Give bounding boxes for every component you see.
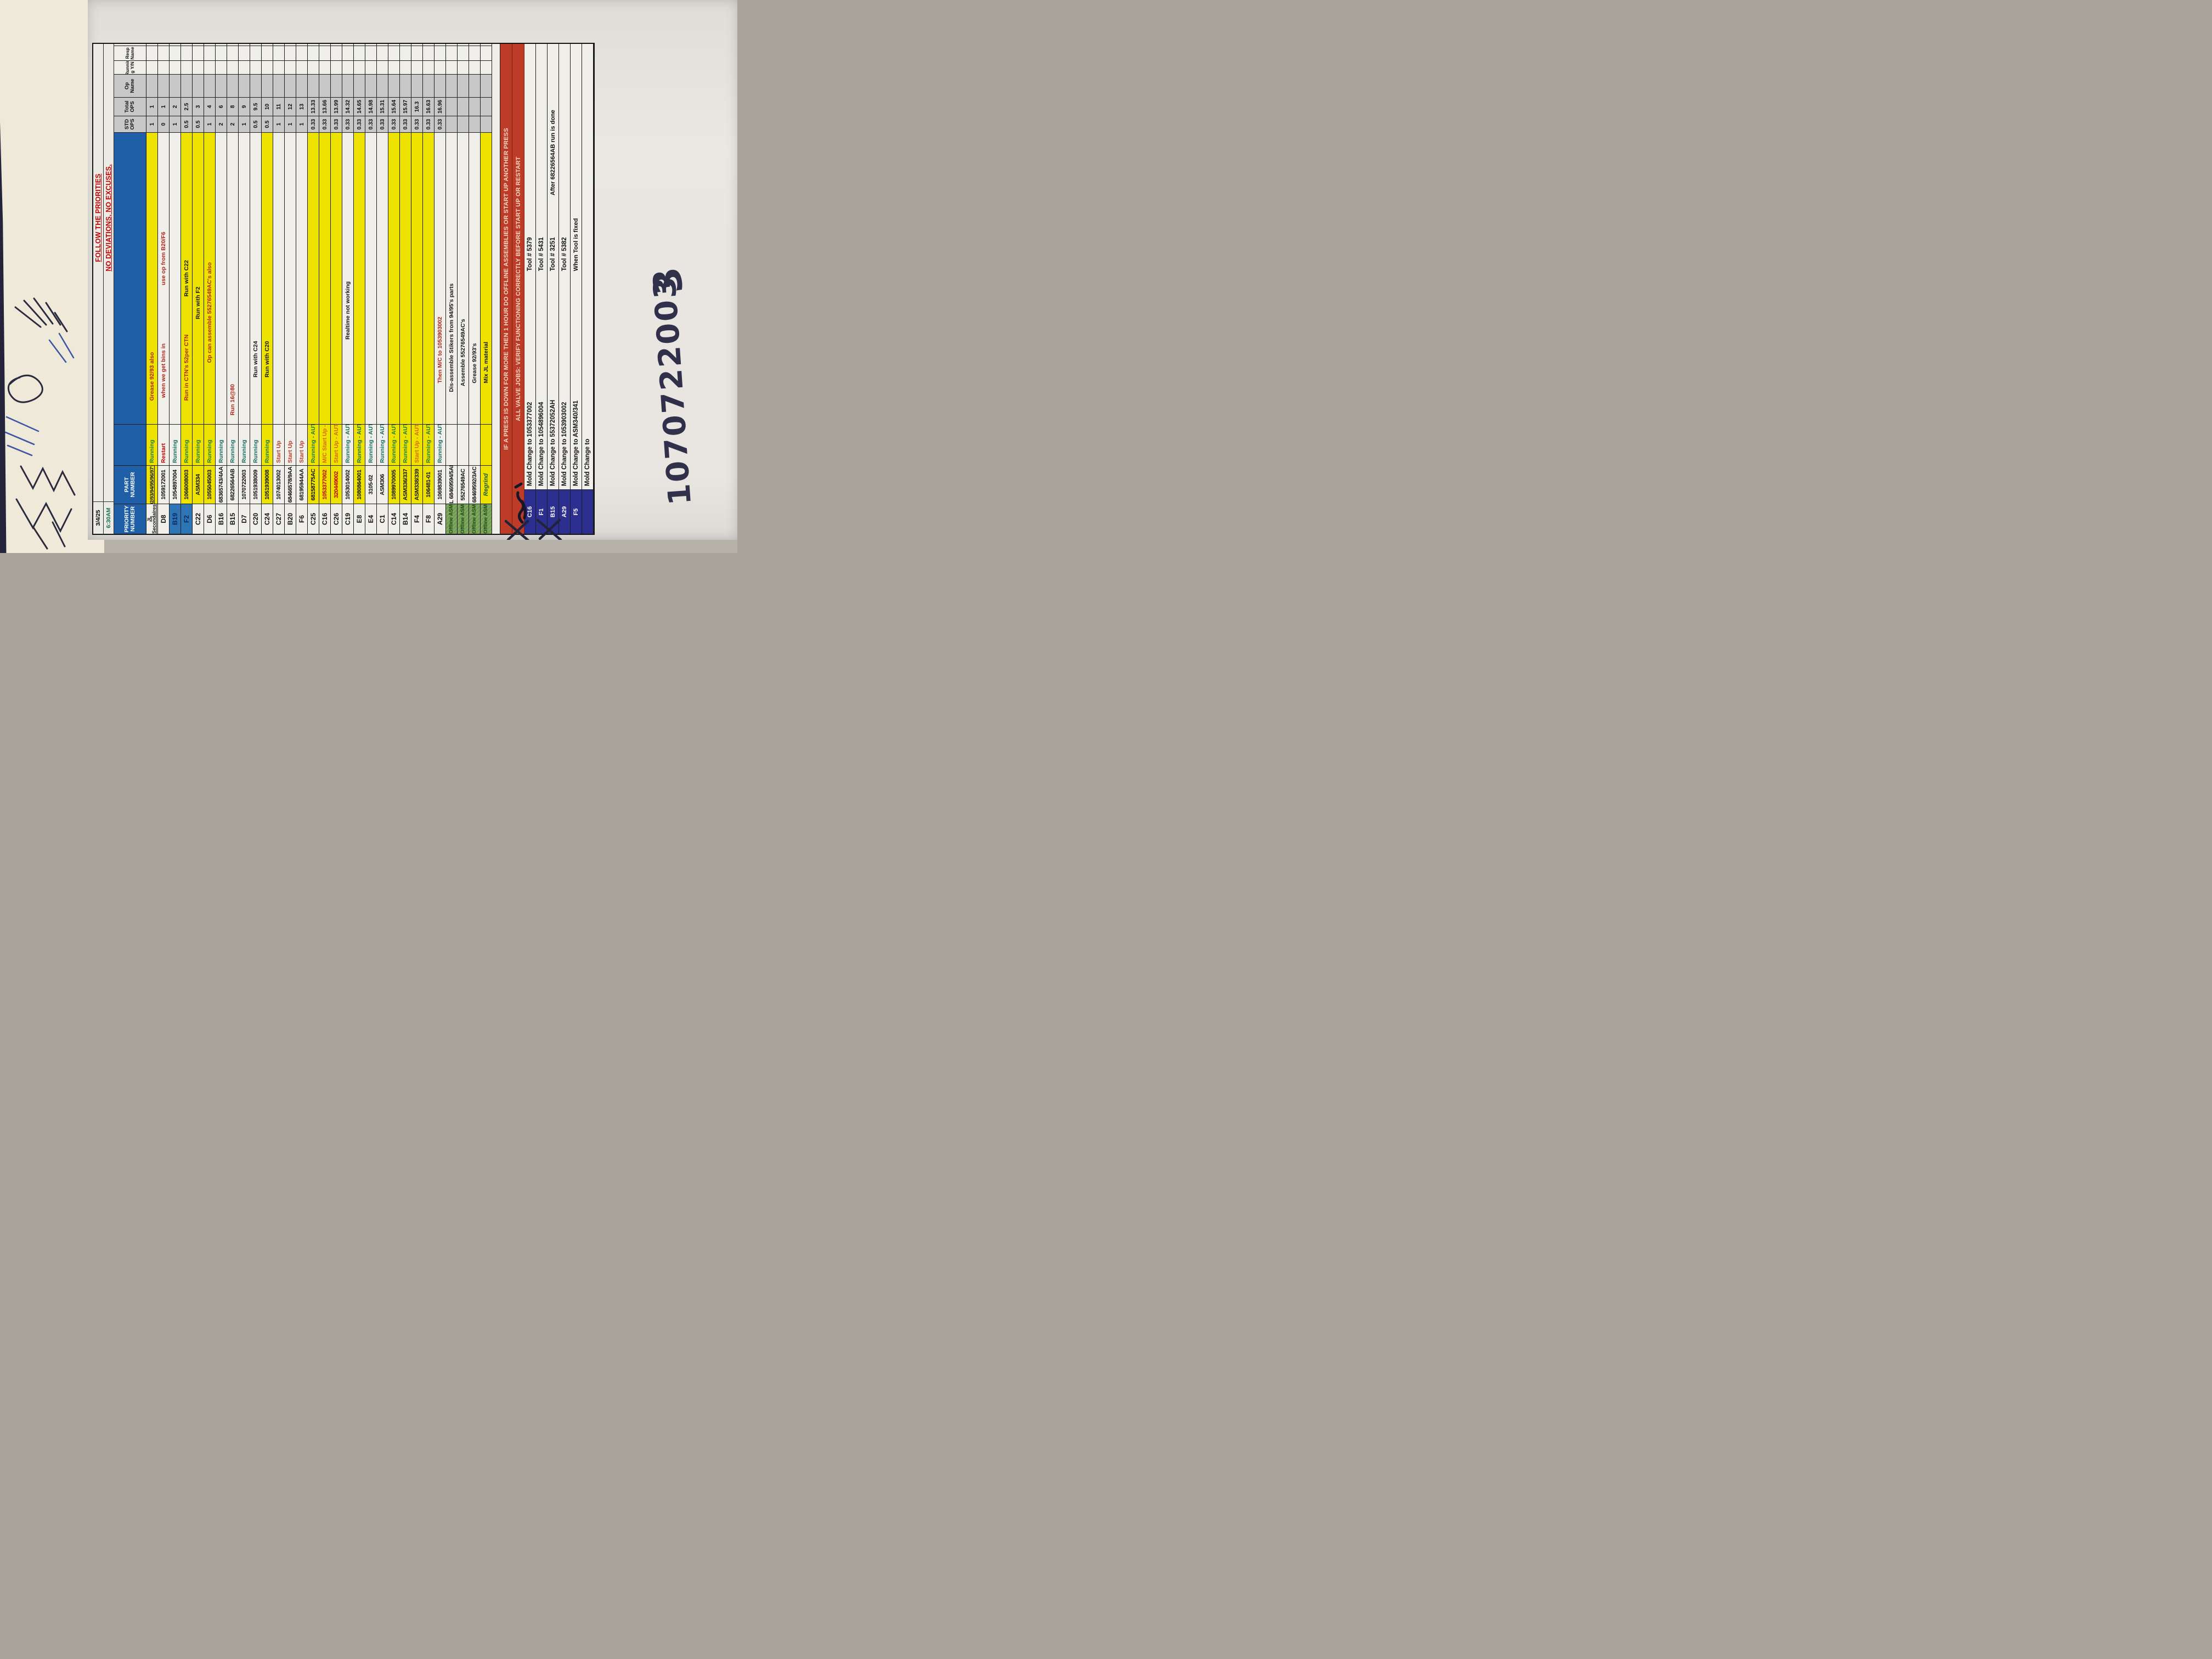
cell-notes: Realtime not working: [342, 132, 353, 424]
cell-op-name: [469, 74, 480, 97]
note-text: Then M/C to 1053903002: [437, 317, 443, 383]
cell-total-ops: 14.98: [365, 97, 376, 116]
mold-change-row: B15Mold Change to 55372052AHTool # 3251A…: [548, 44, 559, 534]
banner-text: IF A PRESS IS DOWN FOR MORE THEN 1 HOUR …: [503, 128, 510, 450]
cell-part-number: 3105-02: [365, 465, 376, 504]
cell-resp-name: [458, 46, 469, 60]
mold-row-press-label: [582, 489, 593, 534]
cell-status: Running: [227, 424, 238, 465]
cell-op-name: [354, 74, 365, 97]
cell-std-ops: 0.33: [331, 116, 342, 132]
cell-status: Running - AUTO: [435, 424, 445, 465]
data-rows: JLSecondaires92/93/94/95/96/97'sRunningG…: [146, 44, 492, 534]
cell-notes: [354, 132, 365, 424]
cell-notes: [411, 132, 422, 424]
cell-std-ops: 0.33: [319, 116, 330, 132]
cell-total-ops: 14.65: [354, 97, 365, 116]
cell-notes: Dis-assemble Stikers from 94/95's parts: [446, 132, 457, 424]
cell-resp-name: [331, 46, 342, 60]
cell-priority: D8: [158, 504, 169, 534]
cell-total-ops: 1: [158, 97, 169, 116]
cell-total-ops: 15.31: [377, 97, 388, 116]
cell-running-yn: [354, 60, 365, 74]
mold-change-row: A29Mold Change to 1053903002Tool # 5382: [559, 44, 571, 534]
cell-total-ops: 16.3: [411, 97, 422, 116]
cell-std-ops: [446, 116, 457, 132]
cell-priority: B16: [216, 504, 227, 534]
cell-running-yn: [181, 60, 192, 74]
table-row: C22ASM334RunningRun with F20.53: [193, 44, 204, 534]
mold-row-body: Mold Change to 1053903002Tool # 5382: [559, 44, 570, 489]
cell-priority: D6: [204, 504, 215, 534]
cell-running-yn: [365, 60, 376, 74]
cell-priority: E8: [354, 504, 365, 534]
table-row: D71070722003Running19: [239, 44, 250, 534]
cell-status: Running - AUTO: [400, 424, 411, 465]
cell-status: Start Up: [296, 424, 307, 465]
cell-status: [458, 424, 469, 465]
cell-op-name: [227, 74, 238, 97]
cell-resp-name: [239, 46, 250, 60]
date-cell: 3/4/25: [93, 501, 103, 534]
cell-status: Running - AUTO: [377, 424, 388, 465]
cell-std-ops: [469, 116, 480, 132]
cell-priority: F4: [411, 504, 422, 534]
cell-part-number: 1051939008: [262, 465, 273, 504]
cell-part-number: 1074013002: [273, 465, 284, 504]
cell-status: Running: [216, 424, 227, 465]
note-text: Run with F2: [195, 286, 201, 319]
cell-op-name: [181, 74, 192, 97]
cell-total-ops: 16.96: [435, 97, 445, 116]
cell-op-name: [170, 74, 180, 97]
priority-schedule-table: 3/4/25 FOLLOW THE PRIORITIES 6:30AM NO D…: [92, 43, 595, 535]
cell-part-number: 68226564AB: [227, 465, 238, 504]
cell-total-ops: 4: [204, 97, 215, 116]
cell-total-ops: 13.66: [319, 97, 330, 116]
table-row: C1ASM306Running - AUTO0.3315.31: [377, 44, 388, 534]
cell-running-yn: [331, 60, 342, 74]
cell-std-ops: 1: [285, 116, 296, 132]
cell-op-name: [388, 74, 399, 97]
mold-row-press-label: B15: [548, 489, 558, 534]
table-row: C271074013002Start Up111: [273, 44, 285, 534]
cell-notes: Run 16@80: [227, 132, 238, 424]
cell-priority: C27: [273, 504, 284, 534]
table-row: Offline ASMRegrindMix JL material: [481, 44, 492, 534]
cell-priority: C20: [250, 504, 261, 534]
col-header-total-ops: Total OPS: [114, 97, 146, 116]
table-row: D81059172001Restartwhen we get bins inus…: [158, 44, 170, 534]
table-row: Offline ASMJL 68469594/5ABDis-assemble S…: [446, 44, 458, 534]
note-text: Run with C20: [264, 341, 270, 378]
cell-op-name: [446, 74, 457, 97]
cell-priority: C22: [193, 504, 204, 534]
table-row: C141089970005Running - AUTO0.3315.64: [388, 44, 400, 534]
cell-resp-name: [400, 46, 411, 60]
cell-priority: C24: [262, 504, 273, 534]
cell-running-yn: [388, 60, 399, 74]
cell-std-ops: 0.5: [181, 116, 192, 132]
warning-banner: ALL VALVE JOBS: VERIFY FUNCTIONING CORRE…: [512, 44, 524, 534]
table-row: C191053014002Running - AUTORealtime not …: [342, 44, 354, 534]
table-row: F4ASM338/339Start Up - AUTO0.3316.3: [411, 44, 423, 534]
cell-resp-name: [204, 46, 215, 60]
mold-change-row: Mold Change to: [582, 44, 594, 534]
note-text: Assemble 55276549AC's: [460, 319, 466, 386]
cell-priority: C19: [342, 504, 353, 534]
tool-number: Tool # 5431: [538, 237, 545, 271]
cell-running-yn: [400, 60, 411, 74]
cell-part-number: 1080864001: [354, 465, 365, 504]
cell-running-yn: [170, 60, 180, 74]
cell-part-number: 55276549AC: [458, 465, 469, 504]
cell-op-name: [423, 74, 434, 97]
cell-std-ops: 2: [216, 116, 227, 132]
cell-priority: A29: [435, 504, 445, 534]
cell-resp-name: [216, 46, 227, 60]
title-no-deviations: NO DEVIATIONS, NO EXCUSES.: [105, 164, 112, 271]
cell-op-name: [319, 74, 330, 97]
cell-priority: Offline ASM: [481, 504, 492, 534]
cell-running-yn: [469, 60, 480, 74]
cell-notes: [170, 132, 180, 424]
cell-std-ops: 0: [158, 116, 169, 132]
cell-total-ops: 15.64: [388, 97, 399, 116]
cell-total-ops: 9.5: [250, 97, 261, 116]
cell-status: Running - AUTO: [388, 424, 399, 465]
mold-change-row: F1Mold Change to 1054896004Tool # 5431: [536, 44, 548, 534]
cell-std-ops: 0.33: [411, 116, 422, 132]
cell-op-name: [342, 74, 353, 97]
mold-change-rows: C16Mold Change to 1053377002Tool # 5379F…: [524, 44, 594, 534]
cell-running-yn: [308, 60, 319, 74]
cell-part-number: 1069839001: [435, 465, 445, 504]
cell-part-number: Regrind: [481, 465, 492, 504]
title-follow-the-priorities: FOLLOW THE PRIORITIES: [94, 173, 102, 262]
cell-std-ops: 0.33: [354, 116, 365, 132]
table-row: F8106481-01Running - AUTO0.3316.63: [423, 44, 435, 534]
cell-std-ops: 0.5: [250, 116, 261, 132]
cell-running-yn: [262, 60, 273, 74]
cell-op-name: [250, 74, 261, 97]
table-row: C201051938009RunningRun with C240.59.5: [250, 44, 262, 534]
cell-notes: Then M/C to 1053903002: [435, 132, 445, 424]
cell-total-ops: [469, 97, 480, 116]
tool-number: Tool # 5379: [527, 237, 533, 271]
cell-part-number: 92/93/94/95/96/97's: [146, 465, 157, 504]
cell-resp-name: [308, 46, 319, 60]
note-text: Run with C24: [252, 341, 259, 378]
cell-total-ops: 15.97: [400, 97, 411, 116]
cell-total-ops: 1: [146, 97, 157, 116]
note-text: Run 16@80: [229, 384, 236, 415]
mold-row-body: Mold Change to: [582, 44, 593, 489]
table-row: C26320449002Start Up - AUTO0.3313.99: [331, 44, 342, 534]
handwritten-digit: 3: [644, 264, 692, 298]
cell-part-number: 106481-01: [423, 465, 434, 504]
cell-running-yn: [250, 60, 261, 74]
table-row: B14ASM336/337Running - AUTO0.3315.97: [400, 44, 411, 534]
cell-part-number: 1054897004: [170, 465, 180, 504]
cell-status: Running: [181, 424, 192, 465]
tool-number: Tool # 5382: [561, 237, 568, 271]
table-row: E43105-02Running - AUTO0.3314.98: [365, 44, 377, 534]
cell-notes: Run with C24: [250, 132, 261, 424]
cell-priority: Offline ASM: [458, 504, 469, 534]
cell-std-ops: 1: [170, 116, 180, 132]
cell-total-ops: [458, 97, 469, 116]
cell-std-ops: 0.33: [388, 116, 399, 132]
cell-total-ops: 13.33: [308, 97, 319, 116]
mold-change-text: Mold Change to ASM340/341: [573, 400, 579, 486]
cell-notes: [400, 132, 411, 424]
cell-part-number: 320449002: [331, 465, 342, 504]
cell-std-ops: 1: [296, 116, 307, 132]
cell-notes: Op can assemble 55276549AC's also: [204, 132, 215, 424]
cell-status: Running: [250, 424, 261, 465]
photo-canvas: 3/4/25 FOLLOW THE PRIORITIES 6:30AM NO D…: [0, 0, 737, 553]
cell-notes: [239, 132, 250, 424]
cell-op-name: [204, 74, 215, 97]
cell-resp-name: [469, 46, 480, 60]
cell-total-ops: 6: [216, 97, 227, 116]
cell-running-yn: [481, 60, 492, 74]
table-row: JLSecondaires92/93/94/95/96/97'sRunningG…: [146, 44, 158, 534]
cell-part-number: 68469592/3AC: [469, 465, 480, 504]
cell-resp-name: [481, 46, 492, 60]
cell-notes: Grease 92/93 also: [146, 132, 157, 424]
cell-total-ops: 16.63: [423, 97, 434, 116]
cell-std-ops: [458, 116, 469, 132]
col-header-op-name: Op Name: [114, 74, 146, 97]
cell-notes: [216, 132, 227, 424]
note-text: Realtime not working: [345, 281, 351, 340]
cell-total-ops: 10: [262, 97, 273, 116]
cell-op-name: [193, 74, 204, 97]
title-row-1: 3/4/25 FOLLOW THE PRIORITIES: [93, 44, 104, 534]
cell-part-number: 68365743/4AA: [216, 465, 227, 504]
table-row: B191054897004Running12: [170, 44, 181, 534]
cell-priority: B15: [227, 504, 238, 534]
table-row: Offline ASM55276549ACAssemble 55276549AC…: [458, 44, 469, 534]
cell-resp-name: [388, 46, 399, 60]
col-header-resp-name: Resp Name: [114, 46, 146, 60]
cell-resp-name: [158, 46, 169, 60]
table-row: Offline ASM68469592/3ACGrease 92/93's: [469, 44, 481, 534]
cell-resp-name: [377, 46, 388, 60]
mold-change-text: Mold Change to 1053377002: [527, 402, 533, 486]
mold-row-press-label: F5: [571, 489, 582, 534]
cell-priority: C25: [308, 504, 319, 534]
mold-change-text: Mold Change to: [584, 439, 591, 486]
cell-op-name: [146, 74, 157, 97]
cell-total-ops: [481, 97, 492, 116]
table-row: D61055045003RunningOp can assemble 55276…: [204, 44, 216, 534]
cell-resp-name: [319, 46, 330, 60]
cell-part-number: 68466578/9AA: [285, 465, 296, 504]
col-header-running-yn: Runnin g Y/N: [114, 60, 146, 74]
cell-std-ops: 0.5: [262, 116, 273, 132]
mold-change-text: Mold Change to 1054896004: [538, 402, 545, 486]
table-row: C241051939008RunningRun with C200.510: [262, 44, 273, 534]
cell-notes: [377, 132, 388, 424]
cell-status: M/C Start Up - AUTO: [319, 424, 330, 465]
cell-resp-name: [354, 46, 365, 60]
cell-std-ops: 0.33: [377, 116, 388, 132]
cell-total-ops: 13.99: [331, 97, 342, 116]
cell-resp-name: [146, 46, 157, 60]
cell-priority: Offline ASM: [469, 504, 480, 534]
cell-part-number: 1059172001: [158, 465, 169, 504]
cell-part-number: JL 68469594/5AB: [446, 465, 457, 504]
cell-part-number: 68195944AA: [296, 465, 307, 504]
cell-notes: Run with F2: [193, 132, 204, 424]
cell-running-yn: [273, 60, 284, 74]
col-header-std-ops: STD OPS: [114, 116, 146, 132]
cell-part-number: 68158775AC: [308, 465, 319, 504]
cell-notes: [423, 132, 434, 424]
cell-status: [446, 424, 457, 465]
cell-op-name: [331, 74, 342, 97]
note-text: when we get bins in: [160, 343, 167, 398]
cell-op-name: [296, 74, 307, 97]
cell-status: Start Up: [285, 424, 296, 465]
cell-op-name: [239, 74, 250, 97]
cell-part-number: ASM336/337: [400, 465, 411, 504]
cell-status: Running - AUTO: [365, 424, 376, 465]
note-text: use op from B20/F6: [160, 232, 167, 285]
cell-std-ops: 0.33: [365, 116, 376, 132]
cell-running-yn: [319, 60, 330, 74]
cell-std-ops: 1: [204, 116, 215, 132]
cell-priority: F8: [423, 504, 434, 534]
cell-notes: [319, 132, 330, 424]
cell-std-ops: 1: [239, 116, 250, 132]
cell-priority: B20: [285, 504, 296, 534]
cell-std-ops: 2: [227, 116, 238, 132]
cell-part-number: 1066008003: [181, 465, 192, 504]
cell-total-ops: 8: [227, 97, 238, 116]
cell-priority: C1: [377, 504, 388, 534]
cell-priority: E4: [365, 504, 376, 534]
handwritten-part-number: 1070722003: [647, 274, 698, 506]
cell-total-ops: 11: [273, 97, 284, 116]
cell-status: Running: [193, 424, 204, 465]
note-text: Op can assemble 55276549AC's also: [206, 262, 213, 363]
cell-notes: Run in CTN's 52per CTNRun with C22: [181, 132, 192, 424]
cell-op-name: [458, 74, 469, 97]
cell-priority: C14: [388, 504, 399, 534]
mold-row-body: Mold Change to 55372052AHTool # 3251Afte…: [548, 44, 558, 489]
empty-row: [492, 44, 500, 534]
mold-change-text: Mold Change to 1053903002: [561, 402, 568, 486]
cell-running-yn: [227, 60, 238, 74]
mold-row-body: Mold Change to ASM340/341When Tool is fi…: [571, 44, 582, 489]
table-row: C161053377002M/C Start Up - AUTO0.3313.6…: [319, 44, 331, 534]
table-row: B1568226564ABRunningRun 16@8028: [227, 44, 239, 534]
cell-running-yn: [423, 60, 434, 74]
rotated-paper: 3/4/25 FOLLOW THE PRIORITIES 6:30AM NO D…: [88, 0, 737, 553]
cell-std-ops: 0.33: [342, 116, 353, 132]
cell-notes: [296, 132, 307, 424]
cell-priority: B14: [400, 504, 411, 534]
cell-notes: [273, 132, 284, 424]
cell-running-yn: [239, 60, 250, 74]
cell-running-yn: [216, 60, 227, 74]
cell-total-ops: [446, 97, 457, 116]
cell-running-yn: [285, 60, 296, 74]
cell-op-name: [308, 74, 319, 97]
cell-running-yn: [377, 60, 388, 74]
cell-std-ops: 0.33: [423, 116, 434, 132]
time-cell: 6:30AM: [104, 501, 114, 534]
cell-status: Start Up - AUTO: [331, 424, 342, 465]
cell-resp-name: [262, 46, 273, 60]
banner-rows: IF A PRESS IS DOWN FOR MORE THEN 1 HOUR …: [500, 44, 524, 534]
table-row: B2068466578/9AAStart Up112: [285, 44, 296, 534]
cell-op-name: [400, 74, 411, 97]
cell-status: Running: [170, 424, 180, 465]
note-text: Dis-assemble Stikers from 94/95's parts: [448, 284, 455, 392]
cell-running-yn: [204, 60, 215, 74]
cell-status: Running: [146, 424, 157, 465]
cell-status: Start Up: [273, 424, 284, 465]
cell-op-name: [377, 74, 388, 97]
mold-row-press-label: A29: [559, 489, 570, 534]
cell-notes: Grease 92/93's: [469, 132, 480, 424]
cell-priority: F2: [181, 504, 192, 534]
cell-priority: JLSecondaires: [146, 504, 157, 534]
cell-running-yn: [158, 60, 169, 74]
cell-resp-name: [296, 46, 307, 60]
cell-status: Running - AUTO: [308, 424, 319, 465]
cell-op-name: [273, 74, 284, 97]
table-row: A291069839001Running - AUTOThen M/C to 1…: [435, 44, 446, 534]
cell-status: Restart: [158, 424, 169, 465]
cell-resp-name: [411, 46, 422, 60]
mold-row-press-label: C16: [524, 489, 535, 534]
cell-part-number: 1070722003: [239, 465, 250, 504]
cell-running-yn: [342, 60, 353, 74]
cell-notes: when we get bins inuse op from B20/F6: [158, 132, 169, 424]
banner-text: ALL VALVE JOBS: VERIFY FUNCTIONING CORRE…: [515, 156, 522, 421]
mold-row-body: Mold Change to 1053377002Tool # 5379: [524, 44, 535, 489]
cell-op-name: [411, 74, 422, 97]
tool-number: Tool # 3251: [550, 237, 556, 271]
cell-running-yn: [296, 60, 307, 74]
cell-part-number: ASM306: [377, 465, 388, 504]
table-row: F668195944AAStart Up113: [296, 44, 308, 534]
cell-total-ops: 9: [239, 97, 250, 116]
cell-resp-name: [446, 46, 457, 60]
cell-priority: C16: [319, 504, 330, 534]
cell-std-ops: 0.33: [400, 116, 411, 132]
cell-notes: Mix JL material: [481, 132, 492, 424]
cell-status: Running: [239, 424, 250, 465]
cell-resp-name: [342, 46, 353, 60]
cell-priority: Offline ASM: [446, 504, 457, 534]
cell-running-yn: [193, 60, 204, 74]
warning-banner: IF A PRESS IS DOWN FOR MORE THEN 1 HOUR …: [500, 44, 512, 534]
cell-op-name: [481, 74, 492, 97]
cell-notes: Assemble 55276549AC's: [458, 132, 469, 424]
col-header-status: [114, 424, 146, 465]
mold-change-row: F5Mold Change to ASM340/341When Tool is …: [571, 44, 582, 534]
cell-resp-name: [435, 46, 445, 60]
cell-status: Running - AUTO: [354, 424, 365, 465]
mold-condition-note: After 68226564AB run is done: [550, 110, 556, 195]
